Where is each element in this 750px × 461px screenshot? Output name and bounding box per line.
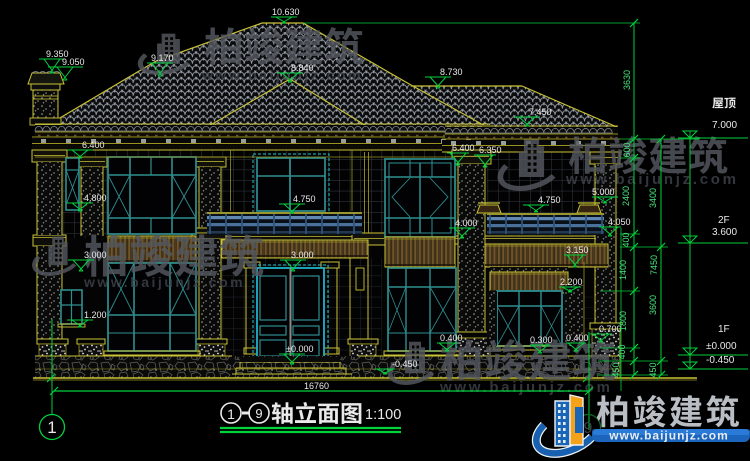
svg-text:2400: 2400: [621, 186, 631, 206]
svg-text:-0.450: -0.450: [706, 355, 735, 366]
svg-text:4.800: 4.800: [84, 193, 107, 203]
svg-text:0.400: 0.400: [440, 333, 463, 343]
svg-text:1800: 1800: [618, 311, 628, 331]
svg-text:8.730: 8.730: [440, 67, 463, 77]
svg-text:2.200: 2.200: [560, 277, 583, 287]
svg-text:1: 1: [47, 418, 56, 437]
svg-text:3600: 3600: [648, 295, 658, 315]
svg-text:1.200: 1.200: [84, 310, 107, 320]
svg-text:3.150: 3.150: [566, 245, 589, 255]
svg-text:1400: 1400: [618, 260, 628, 280]
svg-text:www.baijunjz.com: www.baijunjz.com: [565, 171, 739, 188]
svg-text:9: 9: [255, 406, 262, 421]
svg-text:±0.000: ±0.000: [706, 341, 737, 352]
svg-text:9.050: 9.050: [62, 57, 85, 67]
svg-text:3.000: 3.000: [291, 250, 314, 260]
svg-text:3400: 3400: [648, 188, 658, 208]
svg-text:10.630: 10.630: [272, 7, 300, 17]
svg-text:-0.450: -0.450: [392, 359, 418, 369]
svg-text:450: 450: [611, 362, 621, 377]
svg-text:1:100: 1:100: [365, 407, 401, 423]
svg-text:7.000: 7.000: [712, 120, 737, 131]
svg-text:6.350: 6.350: [479, 145, 502, 155]
svg-text:7.450: 7.450: [529, 107, 552, 117]
svg-text:8.840: 8.840: [291, 63, 314, 73]
svg-text:3.000: 3.000: [84, 250, 107, 260]
svg-text:3630: 3630: [622, 70, 632, 90]
svg-text:16760: 16760: [304, 381, 329, 391]
svg-text:4.750: 4.750: [293, 194, 316, 204]
svg-text:1: 1: [227, 406, 235, 422]
svg-text:9.170: 9.170: [151, 53, 174, 63]
svg-text:www.baijunjz.com: www.baijunjz.com: [608, 429, 729, 443]
svg-text:0.300: 0.300: [530, 335, 553, 345]
svg-text:6.400: 6.400: [82, 140, 105, 150]
svg-text:5.000: 5.000: [592, 187, 615, 197]
svg-text:6.400: 6.400: [452, 143, 475, 153]
svg-text:450: 450: [648, 362, 658, 377]
svg-text:www.baijunjz.com: www.baijunjz.com: [83, 274, 245, 290]
svg-text:7450: 7450: [649, 255, 659, 275]
svg-text:3.600: 3.600: [712, 227, 737, 238]
svg-text:1F: 1F: [718, 324, 730, 335]
svg-text:2F: 2F: [718, 215, 730, 226]
svg-text:±0.000: ±0.000: [286, 344, 313, 354]
svg-text:400: 400: [621, 232, 631, 247]
svg-text:4.000: 4.000: [455, 218, 478, 228]
svg-text:9: 9: [584, 420, 593, 437]
svg-text:400: 400: [617, 344, 627, 359]
svg-text:4.050: 4.050: [608, 217, 631, 227]
svg-text:0.400: 0.400: [566, 333, 589, 343]
svg-text:www.baijunjz.com: www.baijunjz.com: [201, 67, 363, 83]
svg-text:4.750: 4.750: [538, 195, 561, 205]
svg-text:600: 600: [622, 142, 632, 157]
